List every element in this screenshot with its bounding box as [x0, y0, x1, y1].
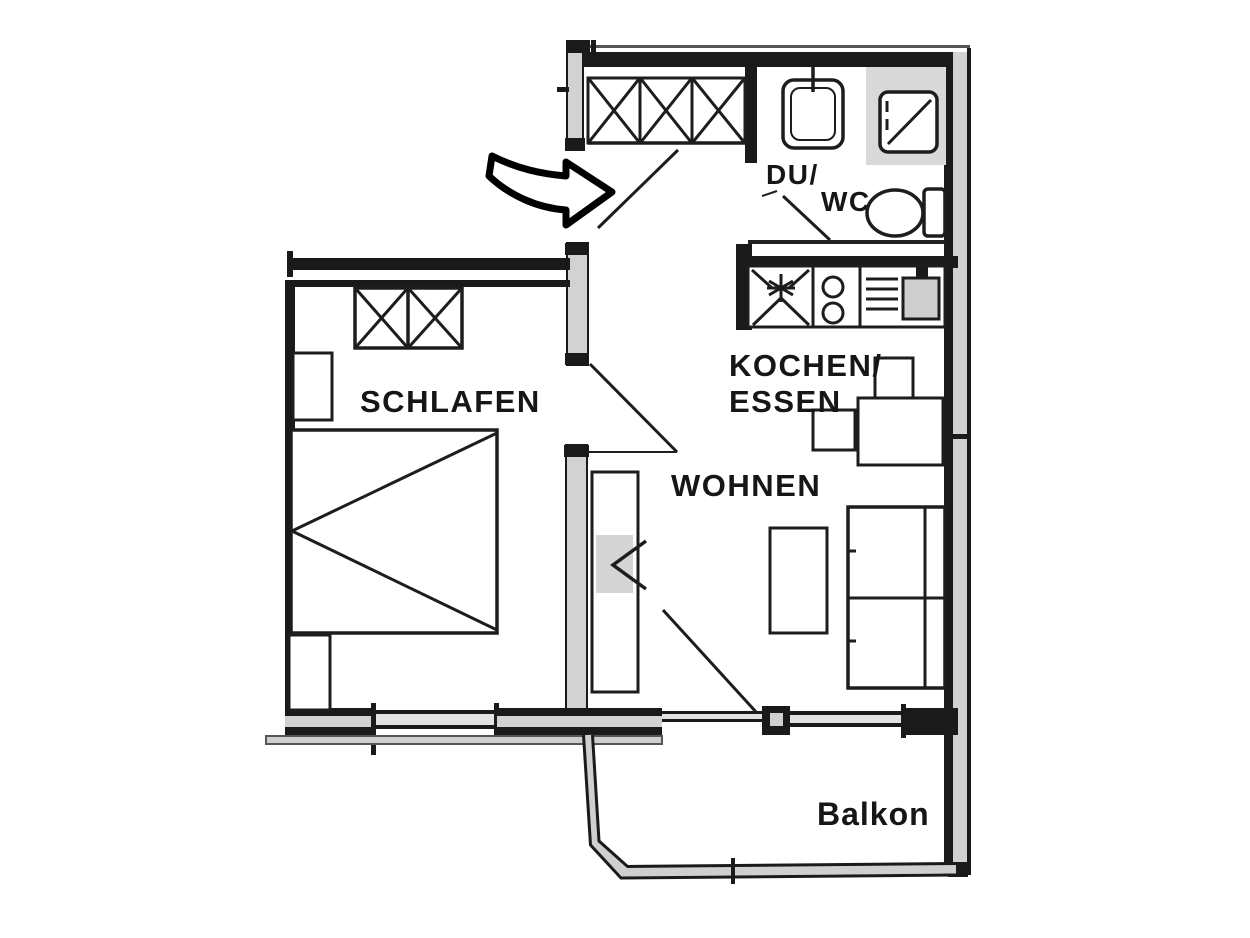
hall-left-wall-tick: [557, 87, 569, 92]
hall-wardrobe: [588, 78, 745, 143]
nightstand-top-outline: [293, 353, 332, 420]
balcony-door-threshold-fill: [662, 714, 762, 719]
coffee-table: [770, 528, 827, 633]
bottom-wall: [285, 703, 958, 755]
living-window-fill: [790, 715, 903, 723]
shower: [866, 67, 946, 165]
room-label-balkon: Balkon: [817, 796, 930, 832]
bedroom-right-wall-cap: [564, 445, 589, 457]
room-label-wc: WC: [821, 186, 871, 217]
bedroom-right-wall: [566, 445, 587, 735]
room-label-du: DU/: [766, 159, 819, 190]
sink-tap: [916, 267, 928, 278]
right-wall-inner-line: [944, 52, 953, 875]
bath-left-wall: [745, 67, 757, 163]
sofa: [848, 507, 945, 688]
room-label-essen: ESSEN: [729, 384, 842, 419]
bottom-wall-seg1-b: [285, 727, 375, 735]
hall-stub-cap-bottom: [565, 353, 589, 365]
bottom-wall-seg2-a: [497, 708, 662, 716]
room-label-kochen: KOCHEN/: [729, 348, 882, 383]
bathroom-sink: [783, 66, 843, 148]
coffee-table-top: [770, 528, 827, 633]
floor-plan-svg: SCHLAFEN WOHNEN KOCHEN/ ESSEN DU/ WC Bal…: [0, 0, 1250, 938]
toilet-cistern: [924, 189, 945, 236]
bedroom-top-beam-tick: [287, 251, 293, 277]
floor-plan-image: SCHLAFEN WOHNEN KOCHEN/ ESSEN DU/ WC Bal…: [0, 0, 1250, 938]
nightstand-top: [293, 353, 332, 420]
bath-sink-inner: [791, 88, 835, 140]
bedroom-wardrobe: [355, 288, 462, 348]
room-label-schlafen: SCHLAFEN: [360, 384, 541, 419]
top-wall-outer-line: [568, 45, 970, 48]
bathroom-door-dash: [762, 191, 777, 196]
hall-stub-wall: [567, 243, 588, 365]
hall-left-wall-cap: [565, 138, 585, 151]
kitchen-counter: [748, 266, 945, 327]
nightstand-bottom: [289, 635, 330, 710]
bedroom-top-beam: [288, 258, 570, 270]
top-wall-tick: [591, 40, 596, 67]
bottom-wall-seg3: [903, 708, 958, 735]
balcony-railing-tick: [731, 858, 735, 884]
burner-1: [823, 277, 843, 297]
right-wall-tick-1: [950, 434, 970, 439]
right-wall-outer-line: [967, 48, 971, 875]
top-wall: [582, 52, 970, 67]
balcony-door-leaf: [663, 610, 757, 713]
dining-table-top: [858, 398, 943, 465]
bottom-wall-seg2-b: [497, 727, 662, 735]
bedroom-window-line-a: [375, 710, 497, 714]
burner-2: [823, 303, 843, 323]
bedroom-window-fill: [375, 714, 497, 725]
bedroom-window-line-b: [375, 725, 497, 729]
toilet: [867, 189, 945, 236]
exterior-edge-line: [266, 736, 662, 744]
bedroom-door-leaf: [590, 364, 677, 452]
dining-table: [858, 398, 943, 465]
bath-bottom-wall-thin: [748, 240, 945, 244]
nightstand-bottom-outline: [289, 635, 330, 710]
bottom-wall-seg1-fill: [285, 716, 375, 727]
bottom-wall-seg2-fill: [497, 716, 662, 727]
bed-outline: [291, 430, 497, 633]
living-window-line-a: [790, 711, 903, 715]
room-label-wohnen: WOHNEN: [671, 468, 821, 503]
hall-left-wall: [567, 52, 583, 150]
right-wall-fill: [953, 52, 967, 875]
bed: [291, 430, 497, 633]
balcony-door-threshold-a: [662, 711, 762, 714]
shelf-unit: [592, 472, 646, 692]
sink-basin: [903, 278, 939, 319]
balcony-door-threshold-b: [662, 719, 762, 722]
bedroom-top-wall: [285, 280, 570, 287]
living-window-line-b: [790, 723, 903, 727]
bottom-wall-pillar-fill: [770, 713, 783, 726]
bedroom-window-tick-left: [371, 703, 376, 755]
toilet-bowl: [867, 190, 923, 236]
entrance-arrow-icon: [489, 156, 612, 225]
hall-stub-cap-top: [565, 243, 589, 255]
